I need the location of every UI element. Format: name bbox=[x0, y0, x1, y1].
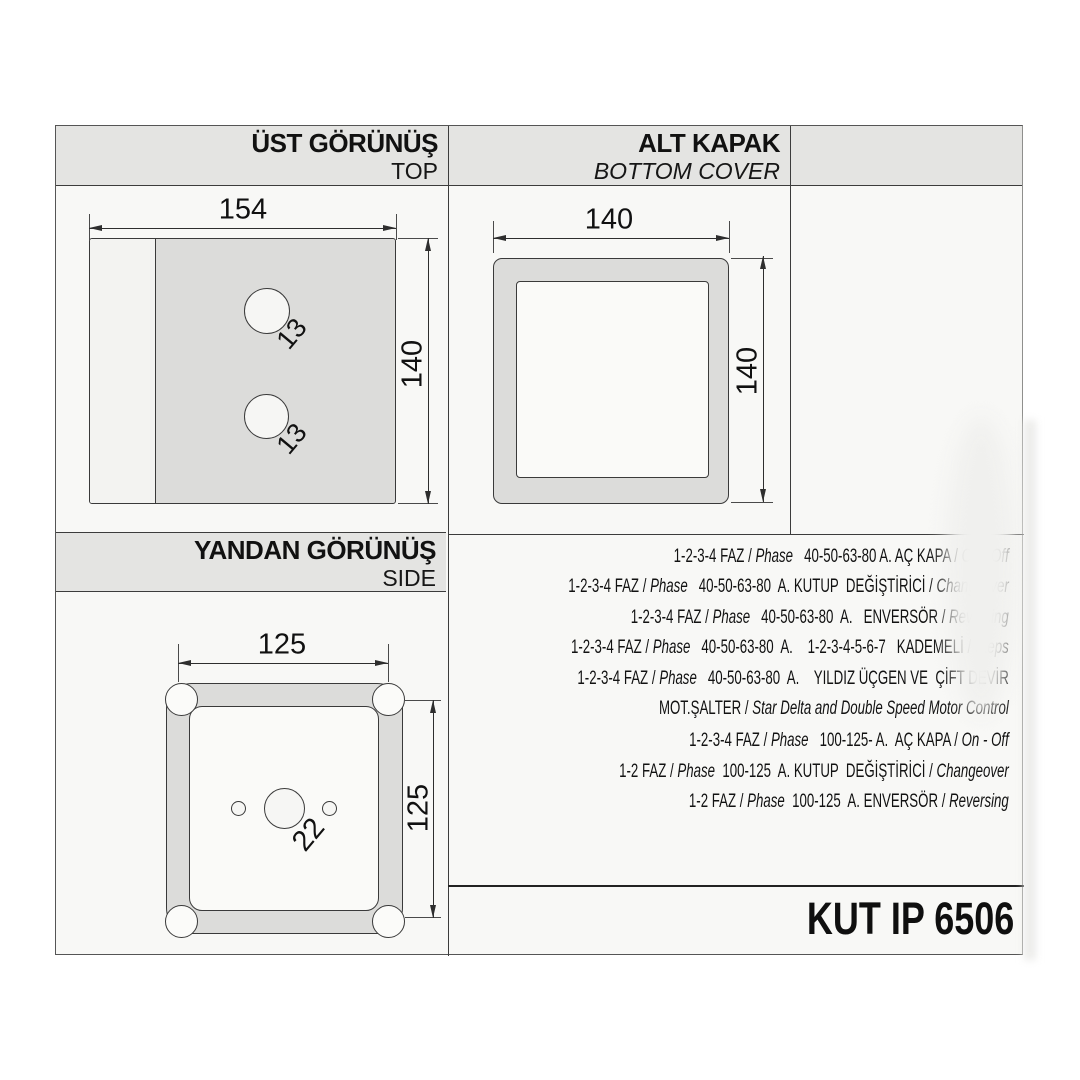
scan-artifact bbox=[946, 416, 1016, 716]
side-view-header-cell: YANDAN GÖRÜNÜŞ SIDE bbox=[56, 533, 446, 591]
dim-label-cover-width: 140 bbox=[585, 204, 633, 237]
side-view-title-tr: YANDAN GÖRÜNÜŞ bbox=[56, 535, 436, 565]
column-divider bbox=[448, 126, 449, 956]
bottom-cover-title-en: BOTTOM COVER bbox=[448, 158, 780, 184]
section-header-side-view: YANDAN GÖRÜNÜŞ SIDE bbox=[56, 532, 446, 592]
arrowhead bbox=[760, 256, 766, 269]
top-view-flange-strip bbox=[90, 239, 156, 503]
bottom-cover-inner bbox=[516, 281, 709, 478]
extension-line bbox=[398, 238, 438, 239]
spec-line: 1-2-3-4 FAZ / Phase 40-50-63-80 A. ENVER… bbox=[569, 602, 1009, 632]
arrowhead bbox=[178, 660, 191, 666]
arrowhead bbox=[425, 491, 431, 504]
arrowhead bbox=[760, 489, 766, 502]
arrowhead bbox=[383, 225, 396, 231]
top-view-body bbox=[89, 238, 396, 504]
extension-line bbox=[398, 503, 438, 504]
arrowhead bbox=[493, 235, 506, 241]
corner-screw-top-right bbox=[372, 683, 405, 716]
corner-screw-bottom-left bbox=[165, 905, 198, 938]
side-view-title-en: SIDE bbox=[56, 565, 436, 591]
dim-line-side-width bbox=[178, 663, 388, 664]
spec-line: 1-2 FAZ / Phase 100-125 A. KUTUP DEĞİŞTİ… bbox=[569, 756, 1009, 786]
extension-line bbox=[729, 221, 730, 253]
spec-line: 1-2-3-4 FAZ / Phase 40-50-63-80 A. AÇ KA… bbox=[569, 541, 1009, 571]
bottom-cover-title-tr: ALT KAPAK bbox=[448, 128, 780, 158]
header-band: ÜST GÖRÜNÜŞ TOP ALT KAPAK BOTTOM COVER bbox=[56, 126, 1022, 186]
extension-line bbox=[731, 258, 773, 259]
section-header-top-view: ÜST GÖRÜNÜŞ TOP bbox=[56, 126, 446, 185]
small-hole-left bbox=[231, 801, 246, 816]
extension-line bbox=[731, 502, 773, 503]
product-code-row: KUT IP 6506 bbox=[448, 885, 1024, 952]
spec-line: MOT.ŞALTER / Star Delta and Double Speed… bbox=[569, 693, 1009, 723]
extension-line bbox=[396, 214, 397, 240]
bottom-cover-cell-border bbox=[790, 126, 791, 534]
spec-line: 1-2-3-4 FAZ / Phase 40-50-63-80 A. 1-2-3… bbox=[569, 632, 1009, 662]
top-view-title-tr: ÜST GÖRÜNÜŞ bbox=[56, 128, 438, 158]
dim-label-cover-height: 140 bbox=[732, 347, 765, 395]
spec-line: 1-2-3-4 FAZ / Phase 40-50-63-80 A. KUTUP… bbox=[569, 571, 1009, 601]
spec-line: 1-2-3-4 FAZ / Phase 40-50-63-80 A. YILDI… bbox=[569, 663, 1009, 693]
arrowhead bbox=[716, 235, 729, 241]
dim-label-side-height: 125 bbox=[403, 784, 436, 832]
dim-line-cover-width bbox=[493, 238, 729, 239]
arrowhead bbox=[430, 700, 436, 713]
section-header-bottom-cover: ALT KAPAK BOTTOM COVER bbox=[448, 126, 788, 185]
spec-line: 1-2 FAZ / Phase 100-125 A. ENVERSÖR / Re… bbox=[569, 786, 1009, 816]
arrowhead bbox=[375, 660, 388, 666]
dim-line-top-width bbox=[89, 228, 396, 229]
datasheet-page: ÜST GÖRÜNÜŞ TOP ALT KAPAK BOTTOM COVER Y… bbox=[0, 0, 1080, 1080]
dim-label-top-width: 154 bbox=[219, 194, 267, 227]
spec-line: 1-2-3-4 FAZ / Phase 100-125- A. AÇ KAPA … bbox=[569, 725, 1009, 755]
top-view-title-en: TOP bbox=[56, 158, 438, 184]
product-code: KUT IP 6506 bbox=[807, 893, 1014, 945]
small-hole-right bbox=[322, 801, 337, 816]
dim-label-side-width: 125 bbox=[258, 629, 306, 662]
scan-artifact bbox=[1024, 420, 1036, 960]
arrowhead bbox=[430, 905, 436, 918]
arrowhead bbox=[425, 238, 431, 251]
corner-screw-bottom-right bbox=[372, 905, 405, 938]
right-column-divider bbox=[448, 534, 1024, 535]
corner-screw-top-left bbox=[165, 683, 198, 716]
extension-line bbox=[388, 644, 389, 682]
dim-label-top-height: 140 bbox=[397, 340, 430, 388]
arrowhead bbox=[89, 225, 102, 231]
spec-sheet: ÜST GÖRÜNÜŞ TOP ALT KAPAK BOTTOM COVER Y… bbox=[55, 125, 1023, 955]
spec-lines: 1-2-3-4 FAZ / Phase 40-50-63-80 A. AÇ KA… bbox=[569, 541, 1009, 817]
